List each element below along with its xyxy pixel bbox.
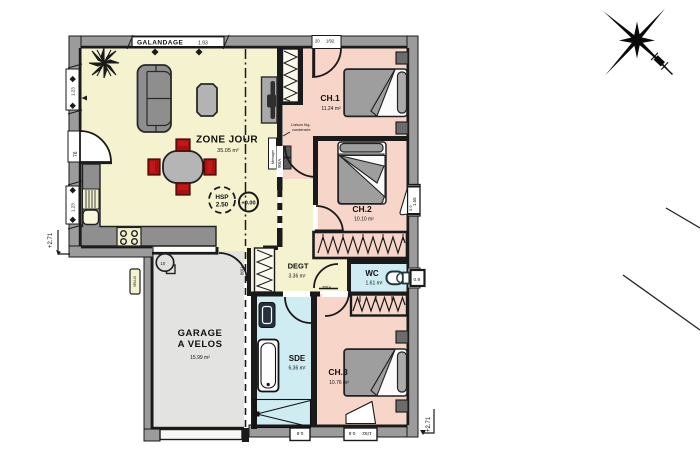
svg-text:1/92: 1/92 xyxy=(362,430,372,436)
svg-text:1.23: 1.23 xyxy=(71,87,76,96)
svg-text:VELUX: VELUX xyxy=(133,275,137,287)
svg-text:CH.3: CH.3 xyxy=(328,367,348,377)
svg-text:+2.71: +2.71 xyxy=(426,416,432,432)
svg-text:SDE: SDE xyxy=(289,354,306,363)
svg-text:10.10 m²: 10.10 m² xyxy=(354,217,374,223)
svg-text:HSP: HSP xyxy=(215,194,229,201)
svg-text:+0.00: +0.00 xyxy=(241,201,255,207)
svg-text:condensée: condensée xyxy=(292,128,311,132)
svg-text:1.23: 1.23 xyxy=(71,203,76,212)
svg-text:2.50: 2.50 xyxy=(216,202,229,209)
svg-text:+2.71: +2.71 xyxy=(48,232,54,248)
svg-text:20: 20 xyxy=(315,39,320,44)
svg-text:1.61 m²: 1.61 m² xyxy=(366,281,383,287)
svg-text:GARAGE: GARAGE xyxy=(178,328,223,339)
svg-text:GALANDAGE: GALANDAGE xyxy=(137,40,184,47)
svg-text:11.24 m²: 11.24 m² xyxy=(321,106,341,112)
svg-text:10: 10 xyxy=(161,261,166,266)
svg-text:0.9: 0.9 xyxy=(296,430,303,436)
svg-text:ZONE JOUR: ZONE JOUR xyxy=(196,135,258,146)
svg-text:WC: WC xyxy=(365,269,379,278)
svg-text:3.36 m²: 3.36 m² xyxy=(289,274,306,280)
svg-text:10.76 m²: 10.76 m² xyxy=(329,380,349,386)
svg-text:70/A: 70/A xyxy=(322,285,331,290)
svg-text:76: 76 xyxy=(73,151,79,157)
svg-text:90/A: 90/A xyxy=(277,159,282,168)
svg-text:1.55: 1.55 xyxy=(412,197,417,206)
svg-text:CH.1: CH.1 xyxy=(320,93,340,103)
svg-text:15.99 m²: 15.99 m² xyxy=(190,355,210,361)
svg-text:1.93: 1.93 xyxy=(198,40,208,46)
svg-text:DEGT: DEGT xyxy=(288,262,309,271)
svg-text:A VELOS: A VELOS xyxy=(178,339,223,350)
svg-text:35.05 m²: 35.05 m² xyxy=(217,148,239,154)
svg-text:CH.2: CH.2 xyxy=(352,204,372,214)
svg-text:0.9: 0.9 xyxy=(348,430,355,436)
svg-text:1/92: 1/92 xyxy=(326,39,335,44)
svg-text:0.9: 0.9 xyxy=(408,205,413,211)
svg-text:Liaison frig-: Liaison frig- xyxy=(291,123,311,127)
svg-text:6.36 m²: 6.36 m² xyxy=(289,366,306,372)
svg-text:80/A: 80/A xyxy=(240,266,245,275)
svg-text:Ménager: Ménager xyxy=(271,149,275,164)
svg-text:0.9: 0.9 xyxy=(414,277,421,283)
